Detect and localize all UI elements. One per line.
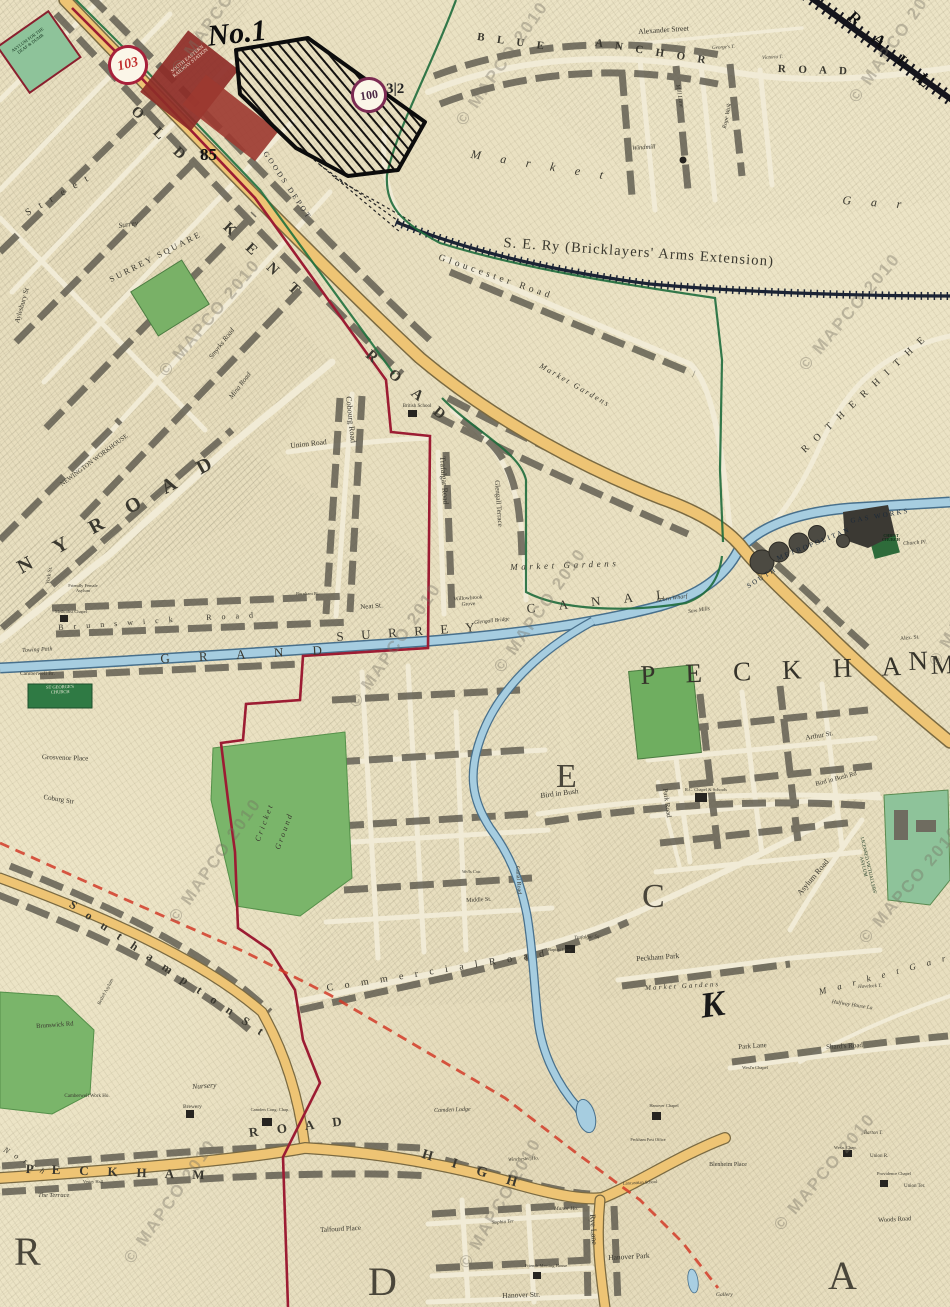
plate-100-value: 100 <box>359 86 379 103</box>
plate-number-103: 103 <box>104 41 152 89</box>
plate-103-value: 103 <box>116 55 140 76</box>
plate-number-100: 100 <box>349 75 390 116</box>
sheet-plate-markers: 103 100 <box>0 0 950 1307</box>
antique-map-sheet: ASYLUM FOR THE DEAF & DUMBSOUTH EASTERN … <box>0 0 950 1307</box>
